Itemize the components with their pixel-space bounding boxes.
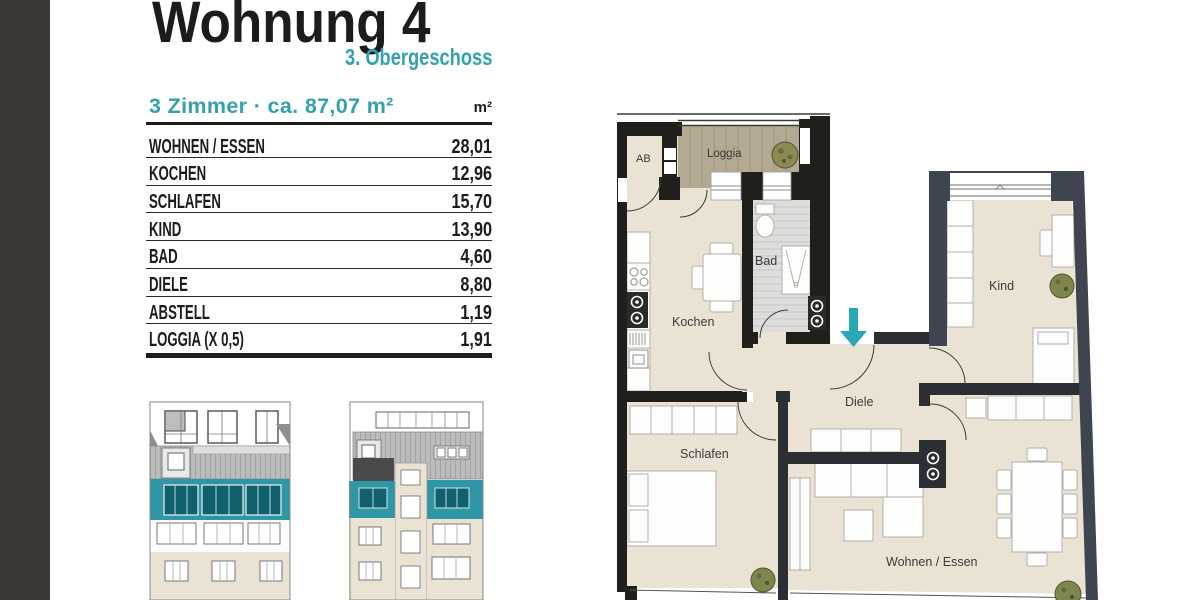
- svg-text:Schlafen: Schlafen: [680, 447, 729, 461]
- svg-text:Diele: Diele: [845, 395, 874, 409]
- svg-text:Bad: Bad: [755, 254, 777, 268]
- svg-text:Kochen: Kochen: [672, 315, 714, 329]
- svg-text:Wohnen / Essen: Wohnen / Essen: [886, 555, 978, 569]
- svg-text:Loggia: Loggia: [707, 148, 742, 160]
- svg-text:Kind: Kind: [989, 279, 1014, 293]
- svg-text:AB: AB: [636, 153, 651, 165]
